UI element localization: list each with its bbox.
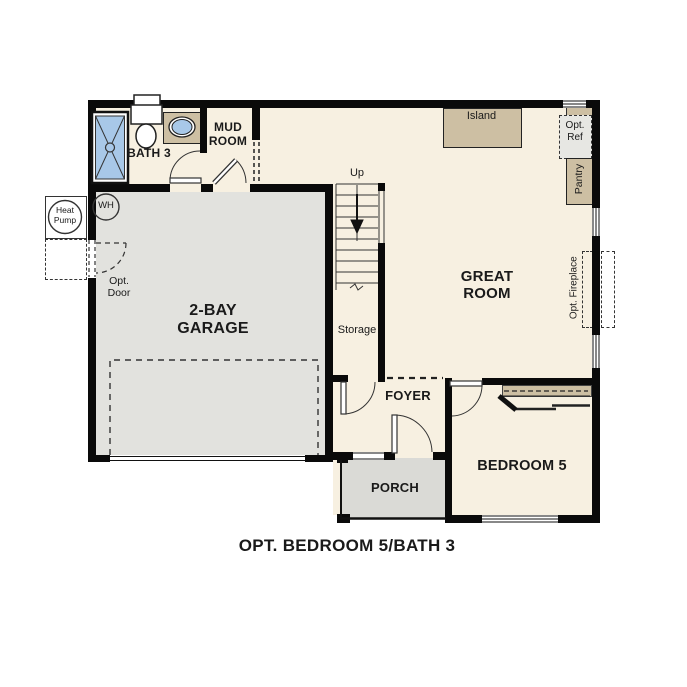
garage-apron-dashed <box>110 360 318 455</box>
stairs <box>336 184 384 290</box>
great-room-label: GREAT ROOM <box>452 268 522 303</box>
opt-garage-side-door <box>96 243 126 273</box>
bath3-door <box>170 151 201 183</box>
floorplan-page: Up Storage GREAT ROOM 2-BAY GARAGE BEDRO… <box>0 0 687 687</box>
bedroom5-closet <box>499 391 590 410</box>
garage-label: 2-BAY GARAGE <box>173 302 253 339</box>
water-heater-label: WH <box>94 201 118 212</box>
plan-caption: OPT. BEDROOM 5/BATH 3 <box>97 536 597 556</box>
window-top-kitchen <box>563 100 586 108</box>
garage-door <box>110 455 305 462</box>
bath-sink <box>169 117 195 137</box>
bath3-label: BATH 3 <box>127 147 171 161</box>
window-right-2 <box>592 335 600 368</box>
heat-pump-label: Heat Pump <box>50 206 80 226</box>
foyer-label: FOYER <box>368 389 448 404</box>
opt-fireplace-label: Opt. Fireplace <box>568 248 580 328</box>
floorplan-linework <box>0 0 687 687</box>
island-label: Island <box>443 110 520 123</box>
shower <box>92 112 128 183</box>
stairs-up-label: Up <box>340 167 374 180</box>
opt-ref-label: Opt. Ref <box>561 120 589 143</box>
stairs-up-arrow <box>351 194 363 233</box>
bedroom5-door <box>450 381 482 416</box>
window-foyer-sidelite <box>353 452 384 460</box>
toilet <box>131 95 162 148</box>
opt-door-label: Opt. Door <box>102 275 136 299</box>
front-door <box>392 415 432 453</box>
bedroom5-label: BEDROOM 5 <box>452 458 592 475</box>
window-bedroom5 <box>482 515 558 523</box>
pantry-label: Pantry <box>573 154 585 204</box>
porch-label: PORCH <box>355 481 435 496</box>
mud-room-label: MUD ROOM <box>202 121 254 149</box>
storage-label: Storage <box>331 324 383 337</box>
doors <box>96 151 482 453</box>
mudroom-garage-door <box>214 160 246 183</box>
opt-door-opening <box>89 240 96 277</box>
window-right-1 <box>592 208 600 236</box>
